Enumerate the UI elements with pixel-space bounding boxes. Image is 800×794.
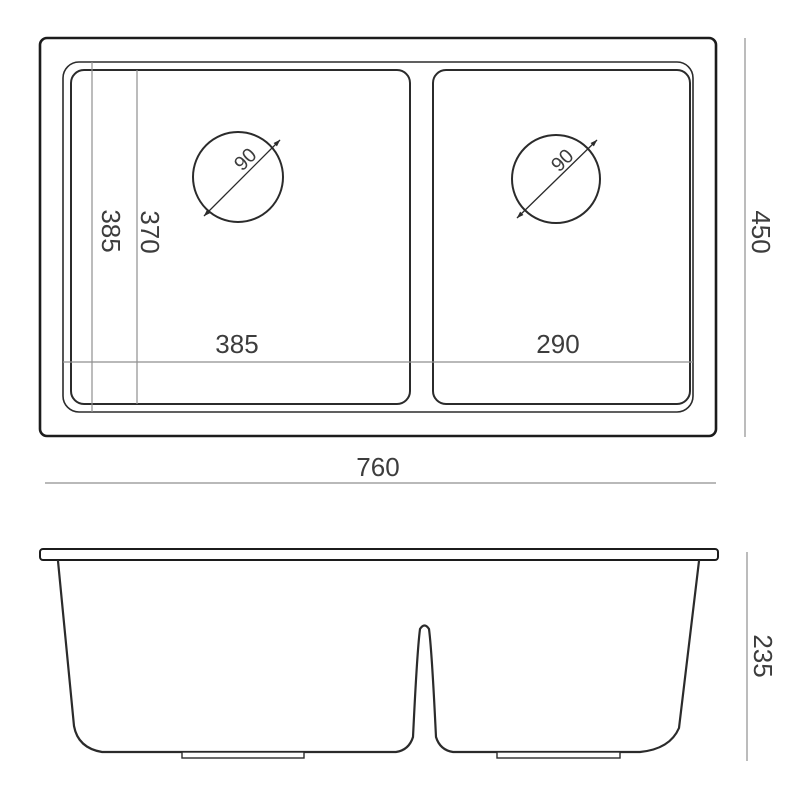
left-bowl-width-label: 385 xyxy=(215,329,258,359)
right-foot-pad xyxy=(497,752,620,758)
front-view: 235 xyxy=(40,549,778,761)
top-view: 385 370 385 290 450 760 90 90 xyxy=(40,38,776,483)
front-bowl-profile xyxy=(58,561,699,752)
right-drain-diameter-label: 90 xyxy=(547,145,578,176)
front-rim-bar xyxy=(40,549,718,560)
overall-depth-label: 450 xyxy=(746,210,776,253)
sink-dimension-drawing: 385 370 385 290 450 760 90 90 235 xyxy=(0,0,800,794)
right-bowl-width-label: 290 xyxy=(536,329,579,359)
front-depth-label: 235 xyxy=(748,634,778,677)
left-drain-diameter-label: 90 xyxy=(230,144,261,175)
overall-width-label: 760 xyxy=(356,452,399,482)
left-drain-hole xyxy=(193,132,283,222)
bowl-depth-label: 370 xyxy=(135,210,165,253)
rim-depth-label: 385 xyxy=(96,209,126,252)
left-foot-pad xyxy=(182,752,304,758)
